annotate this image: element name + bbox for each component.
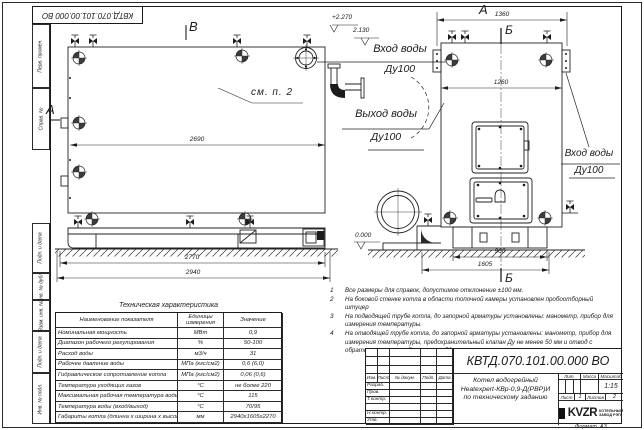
tech-col-value: Значение [224,313,283,328]
section-b-top: Б [505,24,513,36]
kvzr-logo-text: KVZR [568,407,597,419]
list-item: 2На боковой стенке котла в области топоч… [330,296,620,312]
dim-side-top: 1360 [482,12,522,19]
doc-number: КВТД.070.101.00.000 ВО [453,349,623,374]
pedestal [453,227,547,248]
base-skid [68,228,325,248]
fan [374,188,441,250]
margin-box-inv-podl: Инв. № подл. [32,373,50,424]
inlet-dn-right: Ду100 [558,166,620,176]
table-row: Гидравлическое сопротивление котла [56,370,178,381]
tech-table-title: Техническая характеристика [55,302,282,309]
elevation-zero: 0.000 [355,233,371,240]
table-row: Температура воды (вход/выход) [56,402,178,413]
tech-table: Наименование показателя Единицы измерени… [55,312,282,424]
kvzr-logo-icon [559,408,565,419]
org-cell: KVZR КОТЕЛЬНЫЙ ЗАВОД РЭП [559,401,623,425]
inlet-flange [293,45,319,71]
sheets-row: Лист 1 Листов 2 [559,394,623,401]
margin-box-vzam-inv: Взам. инв. № [32,300,50,331]
table-row: Температура уходящих газов [56,381,178,392]
title-block: Изм. Лист № докум. Подп. Дата Разраб. Пр… [365,348,622,424]
dim-front-base: 2770 [152,255,232,262]
margin-box-podp-data-2: Подп. и дата [32,331,50,373]
list-item: 3На подводящей трубе котла, до запорной … [330,313,620,329]
margin-box-podp-data-1: Подп. и дата [32,223,50,273]
format-note: Формат А3 [575,425,607,430]
elevation-top: +2.270 [332,15,352,22]
notes-list: 1Все размеры для справок, допустимое отк… [330,287,620,356]
doc-number-top: КВТД.070.101.00.000 ВО [42,11,133,20]
dim-front-inner: 2690 [157,137,237,144]
table-row: Диапазон рабочего регулирования [56,339,178,350]
inlet-label-center: Вход воды [356,44,444,55]
org-name: КОТЕЛЬНЫЙ ЗАВОД РЭП [599,409,623,417]
table-row: Рабочее давление воды [56,360,178,371]
view-label-a-arrow: А [46,103,55,116]
see-item-note: см. п. 2 [251,88,293,98]
tech-col-units: Единицы измерения [178,313,224,328]
right-label-lines [561,73,620,178]
tech-col-name: Наименование показателя [56,313,178,328]
view-label-v: В [189,20,198,33]
margin-box-sprav-no: Справ. № [32,88,50,150]
margin-box-perv-primen: Перв. примен. [32,24,50,88]
dim-side-inner: 1260 [481,80,521,87]
section-b-bottom: Б [505,272,513,284]
list-item: 1Все размеры для справок, допустимое отк… [330,287,620,295]
upper-door [472,122,529,173]
drawing-sheet: КВТД.070.101.00.000 ВО Перв. примен. Спр… [0,0,644,430]
elevation-inlet: 2.130 [353,28,369,35]
table-row: Расход воды [56,349,178,360]
margin-box-inv-dubl: Инв. № дубл. [32,273,50,300]
dim-side-base: 960 [480,249,520,256]
doc-title: Котел водогрейный Heatexpert-КВр-0,9-Д(Р… [453,374,559,425]
doc-number-top-box: КВТД.070.101.00.000 ВО [32,6,143,24]
table-row: Габариты котла (длинна х ширина х высота… [56,412,178,423]
table-row: Максимальная рабочая температура воды [56,391,178,402]
outlet-label: Выход воды [340,109,432,120]
inlet-label-right: Вход воды [558,149,620,159]
dim-side-overall: 1605 [465,262,505,269]
inlet-dn-center: Ду100 [356,64,444,75]
title-block-left: Изм. Лист № докум. Подп. Дата Разраб. Пр… [366,349,454,425]
scale-value: 1:15 [599,380,623,394]
dim-front-overall: 2940 [153,270,233,277]
outlet-dn: Ду100 [340,132,432,143]
table-row: Номинальная мощность [56,328,178,339]
